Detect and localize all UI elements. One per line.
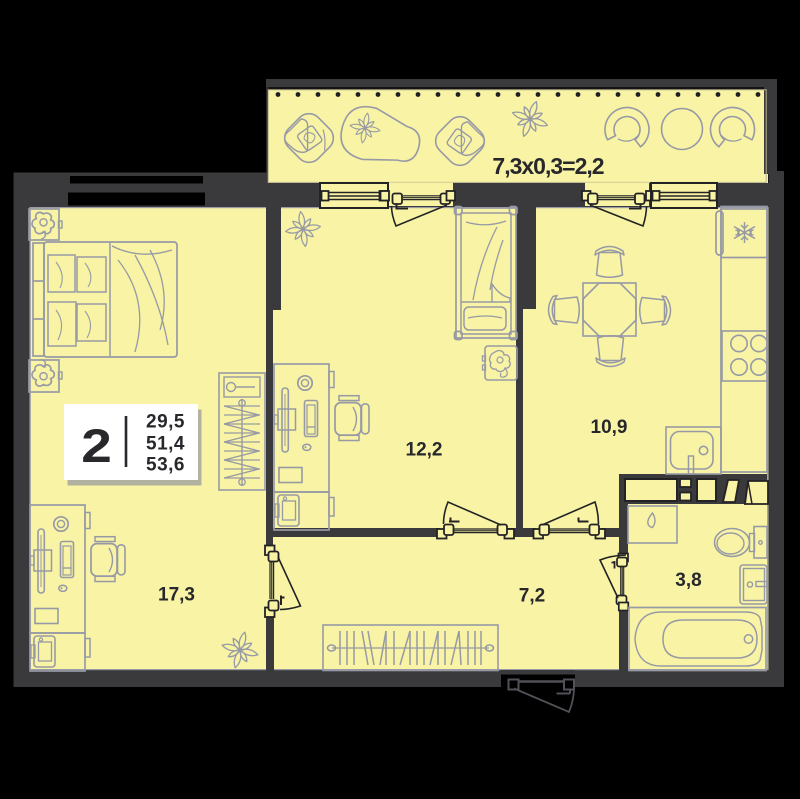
svg-text:10,9: 10,9 xyxy=(591,417,628,438)
svg-text:12,2: 12,2 xyxy=(406,440,443,461)
svg-text:17,3: 17,3 xyxy=(158,585,195,606)
svg-text:29,5: 29,5 xyxy=(146,412,185,433)
svg-text:51,4: 51,4 xyxy=(146,434,185,455)
svg-text:53,6: 53,6 xyxy=(146,455,185,476)
svg-text:7,2: 7,2 xyxy=(519,586,545,607)
svg-text:3,8: 3,8 xyxy=(675,570,701,591)
svg-text:2: 2 xyxy=(81,420,112,472)
svg-text:7,3x0,3=2,2: 7,3x0,3=2,2 xyxy=(492,153,603,179)
